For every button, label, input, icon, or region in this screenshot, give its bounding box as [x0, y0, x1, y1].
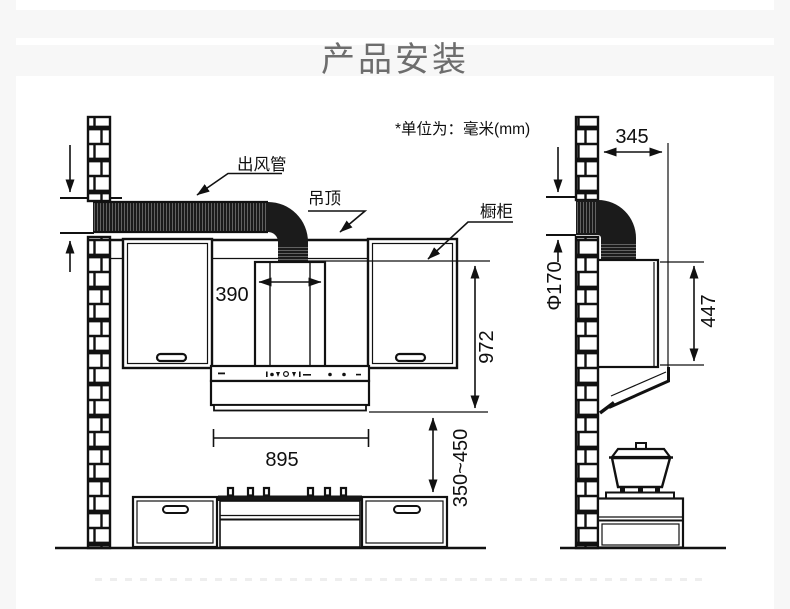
wall-front	[88, 117, 110, 548]
cooktop-front	[218, 488, 362, 547]
faint-footer-text	[95, 578, 710, 581]
ceiling-void-marks-side	[546, 147, 576, 262]
dim-447-text: 447	[698, 294, 720, 327]
hood-body	[211, 366, 369, 411]
pot-body	[612, 458, 670, 487]
leader-arrow-icon	[308, 211, 365, 232]
product-installation-page: 产品安装	[0, 0, 790, 609]
dim-447: 447	[660, 262, 720, 365]
dim-350-450: 350~450	[433, 418, 472, 507]
chimney-side	[598, 260, 658, 367]
dim-390-text: 390	[215, 284, 248, 306]
dim-972-text: 972	[476, 330, 498, 363]
dim-345-text: 345	[615, 126, 648, 148]
base-cabinet-right	[362, 497, 447, 547]
cooking-pot	[609, 443, 673, 493]
cabinet-label: 橱柜	[480, 202, 513, 221]
duct-label: 出风管	[237, 155, 287, 174]
stove-side	[598, 493, 683, 548]
dim-895-text: 895	[265, 449, 298, 471]
dim-350-450-text: 350~450	[450, 429, 472, 507]
installation-diagram: 出风管 吊顶 橱柜 390 895	[0, 0, 790, 609]
wall-side	[576, 117, 598, 548]
hood-canopy-side	[600, 367, 669, 413]
wall-cabinet-right	[368, 239, 457, 368]
dim-phi170-text: Φ170	[544, 261, 566, 310]
pot-lid	[612, 449, 670, 457]
chimney-front	[255, 262, 325, 367]
leader-arrow-icon	[197, 174, 282, 196]
base-cabinet-left	[133, 497, 217, 547]
ceiling-label: 吊顶	[308, 190, 341, 208]
side-view: 345 Φ170 447	[544, 117, 726, 548]
wall-cabinet-left	[123, 239, 212, 368]
drawer-handle	[394, 506, 420, 513]
unit-note: *单位为：毫米(mm)	[395, 119, 530, 138]
ceiling-label-group: 吊顶	[308, 190, 365, 232]
drawer-handle	[163, 506, 188, 513]
front-view: 出风管 吊顶 橱柜 390 895	[55, 117, 513, 548]
cabinet-handle	[396, 354, 425, 361]
cabinet-handle	[157, 354, 186, 361]
duct-label-group: 出风管	[197, 155, 287, 195]
dim-895: 895	[214, 429, 369, 471]
